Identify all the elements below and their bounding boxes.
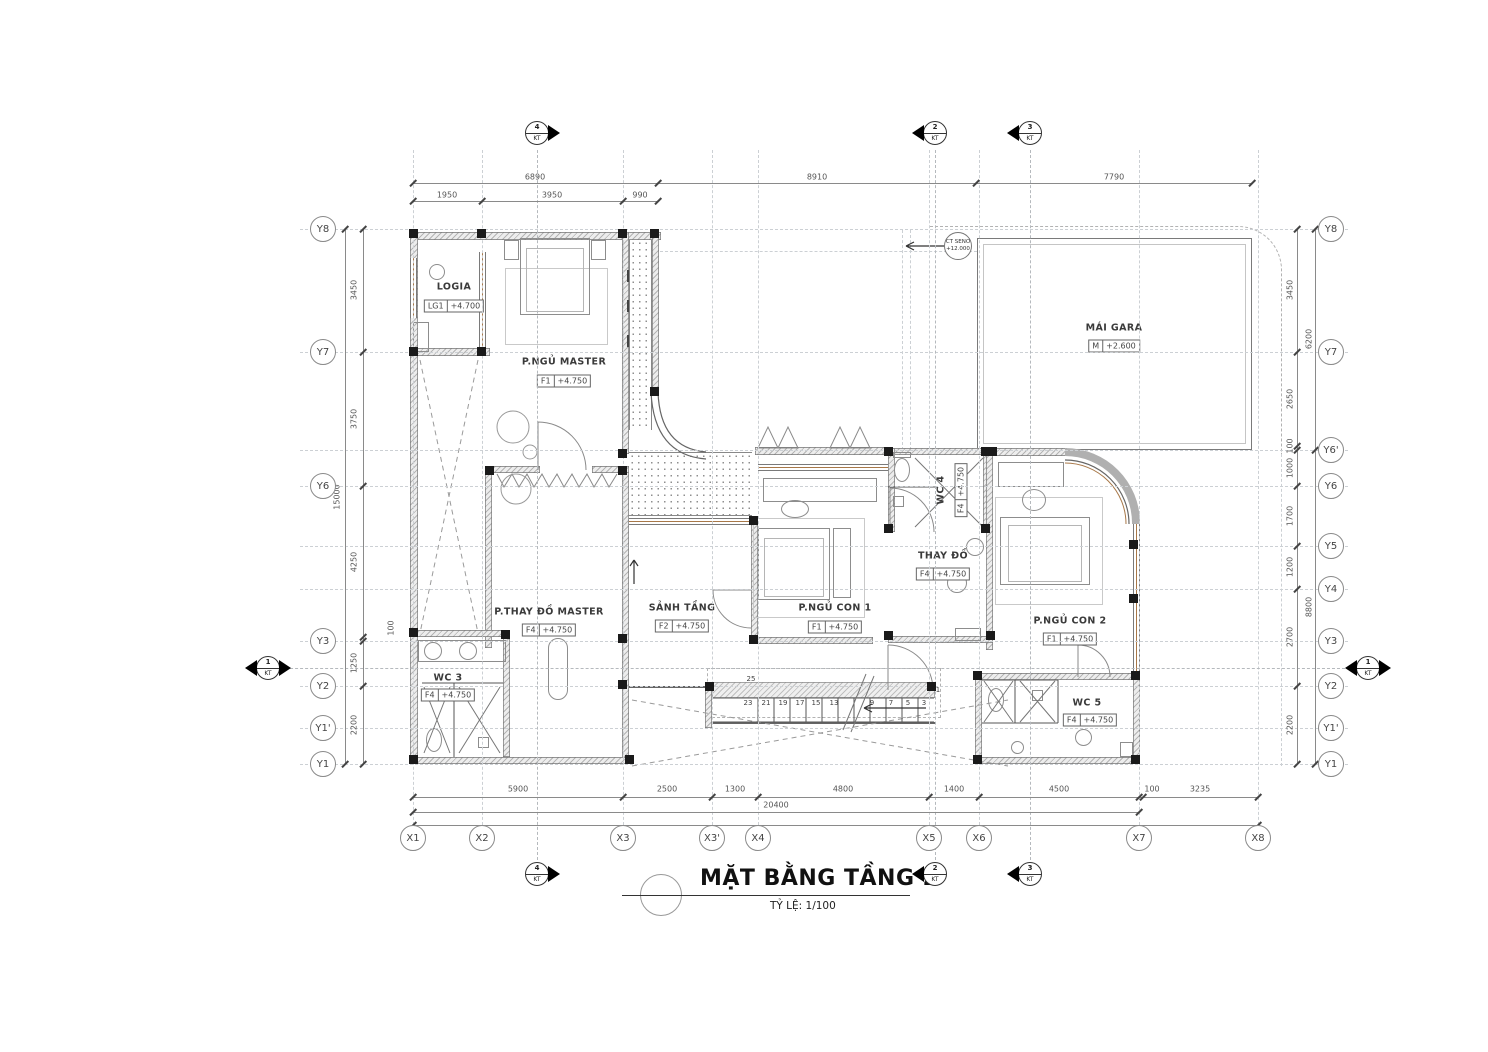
column	[477, 229, 486, 238]
dim-label: 1400	[944, 785, 964, 794]
dim-line-h2	[413, 797, 1258, 798]
section-marker-arrow	[245, 660, 257, 676]
bench-closet	[548, 638, 568, 700]
tag-level: +4.750	[826, 622, 862, 633]
room-tag-hall: F2+4.750	[655, 620, 709, 633]
column	[409, 628, 418, 637]
column	[1131, 755, 1140, 764]
grid-line-x7	[979, 150, 980, 845]
column	[618, 680, 627, 689]
dim-label: 1000	[1286, 458, 1295, 478]
dim-label: 4800	[833, 785, 853, 794]
grid-line-x6	[929, 150, 930, 845]
bed-con2-inner	[1008, 525, 1082, 582]
dim-label: 2650	[1286, 389, 1295, 409]
wall-con1-terrace	[755, 447, 888, 455]
room-label-thaydo: THAY ĐỒ	[918, 551, 968, 562]
axis-bubble-yr-Y7: Y7	[1318, 339, 1344, 365]
section-marker-sheet: KT	[924, 875, 946, 886]
grid-line-x8	[1139, 150, 1140, 845]
tag-level: +4.750	[956, 464, 967, 500]
room-tag-thaydo: F4+4.750	[916, 568, 970, 581]
dim-label: 20400	[763, 801, 788, 810]
column	[618, 449, 627, 458]
room-label-hall: SẢNH TẦNG	[649, 603, 716, 614]
stair-number: 5	[906, 699, 910, 707]
terrace-stipple-vertical	[629, 240, 652, 430]
seno-line-b	[910, 230, 911, 450]
wall-wc3-top	[410, 630, 510, 637]
wall-wc5-bottom	[975, 757, 1140, 764]
window-hall-top	[629, 518, 751, 525]
section-marker-4: 4KT	[525, 862, 549, 886]
column	[749, 516, 758, 525]
column	[618, 466, 627, 475]
dim-label: 4500	[1049, 785, 1069, 794]
tag-code: M	[1089, 341, 1103, 352]
grid-line-y2	[300, 352, 1348, 353]
toilet-wc3	[426, 728, 442, 752]
column	[1131, 671, 1140, 680]
section-marker-arrow	[912, 866, 924, 882]
axis-bubble-yr-Y8: Y8	[1318, 216, 1344, 242]
wall-wc4-left	[888, 448, 895, 532]
tank-wc4	[893, 452, 911, 458]
seno-line-a	[902, 230, 903, 450]
room-label-master: P.NGỦ MASTER	[522, 357, 606, 368]
dim-label: 990	[632, 191, 647, 200]
bed-master-inner	[526, 248, 584, 312]
tag-level: +4.750	[1061, 634, 1097, 645]
title-underline	[622, 895, 910, 896]
room-label-logia: LOGIA	[437, 282, 471, 293]
tag-level: +4.750	[673, 621, 709, 632]
dim-label: 2200	[350, 715, 359, 735]
wall-wc5-top	[975, 673, 1140, 680]
seno-callout: CT SENO +12.000	[944, 232, 972, 260]
stair-number: 9	[870, 699, 874, 707]
wall-closet-left	[485, 468, 492, 648]
axis-bubble-x-X4: X4	[745, 825, 771, 851]
sink-wc3-b	[459, 642, 477, 660]
dim-label: 1250	[350, 653, 359, 673]
room-tag-logia: LG1+4.700	[424, 300, 484, 313]
grid-line-x5	[758, 150, 759, 845]
section-line-3	[1030, 150, 1031, 860]
axis-bubble-yl-Y2: Y2	[310, 673, 336, 699]
section-marker-arrow	[279, 660, 291, 676]
section-marker-arrow	[1379, 660, 1391, 676]
axis-bubble-x-X3: X3	[610, 825, 636, 851]
column	[618, 634, 627, 643]
room-label-con2: P.NGỦ CON 2	[1034, 616, 1107, 627]
stool-thaydo-a	[966, 538, 984, 556]
grid-line-y4	[300, 486, 1348, 487]
column	[477, 347, 486, 356]
shower-wc3	[478, 737, 489, 748]
section-marker-1: 1KT	[256, 656, 280, 680]
floor-plan-canvas: LOGIA LG1+4.700 P.NGỦ MASTER F1+4.750 MÁ…	[0, 0, 1488, 1052]
tag-code: F4	[1064, 715, 1081, 726]
column	[409, 229, 418, 238]
nightstand-master-left	[504, 240, 519, 260]
dim-line-v0	[345, 229, 346, 764]
section-line-4	[537, 150, 538, 860]
axis-bubble-yl-Y1: Y1	[310, 751, 336, 777]
tag-level: +2.600	[1103, 341, 1139, 352]
column	[986, 631, 995, 640]
room-tag-wc4: F4+4.750	[955, 463, 968, 517]
section-marker-sheet: KT	[257, 669, 279, 680]
column	[981, 524, 990, 533]
dim-label: 1300	[725, 785, 745, 794]
axis-bubble-x-X1: X1	[400, 825, 426, 851]
section-marker-1: 1KT	[1356, 656, 1380, 680]
dim-tick	[1248, 179, 1255, 186]
section-marker-arrow	[912, 125, 924, 141]
dim-label: 8800	[1305, 597, 1314, 617]
tag-level: +4.750	[555, 376, 591, 387]
dim-label: 8910	[807, 173, 827, 182]
tag-code: F1	[538, 376, 555, 387]
axis-bubble-yl-Y3: Y3	[310, 628, 336, 654]
column	[625, 755, 634, 764]
column	[650, 229, 659, 238]
section-marker-arrow	[548, 125, 560, 141]
axis-bubble-yr-Y4: Y4	[1318, 576, 1344, 602]
dim-line-h3	[413, 812, 1139, 813]
stair-number: 23	[744, 699, 753, 707]
section-marker-2: 2KT	[923, 121, 947, 145]
dim-label: 100	[387, 620, 396, 635]
section-marker-sheet: KT	[1019, 875, 1041, 886]
sidetable-con1	[833, 528, 851, 598]
axis-bubble-yl-Y8: Y8	[310, 216, 336, 242]
shower-wc4	[893, 496, 904, 507]
dim-label: 3450	[350, 280, 359, 300]
drawing-scale: TỶ LỆ: 1/100	[770, 900, 836, 912]
axis-bubble-yl-Y6: Y6	[310, 473, 336, 499]
wall-bottom-left	[410, 757, 632, 764]
stair-number: 1	[936, 686, 940, 694]
wall-closet-top-a	[486, 466, 540, 473]
dim-line-h4	[413, 825, 1258, 826]
tag-code: F4	[917, 569, 934, 580]
column	[1129, 540, 1138, 549]
room-tag-wc3: F4+4.750	[421, 689, 475, 702]
seno-callout-line1: CT SENO	[946, 239, 970, 246]
seno-callout-line2: +12.000	[946, 246, 970, 253]
dim-label: 1200	[1286, 557, 1295, 577]
stair-number: 19	[779, 699, 788, 707]
column	[501, 630, 510, 639]
stool-wc5-b	[1011, 741, 1024, 754]
grid-line-y3	[300, 450, 1348, 451]
grid-line-x9	[1258, 150, 1259, 845]
stair-number: 25	[747, 675, 756, 683]
axis-bubble-yl-Y7: Y7	[310, 339, 336, 365]
dim-tick	[654, 197, 661, 204]
axis-bubble-x-X2: X2	[469, 825, 495, 851]
desk-con2	[998, 462, 1064, 487]
column	[988, 447, 997, 456]
dim-label: 3750	[350, 409, 359, 429]
terrace-stipple-horizontal	[629, 452, 752, 516]
stair-number: 21	[762, 699, 771, 707]
room-label-closet-master: P.THAY ĐỒ MASTER	[494, 607, 604, 618]
column	[485, 466, 494, 475]
section-marker-number: 4	[526, 863, 548, 875]
dim-label: 3950	[542, 191, 562, 200]
dim-label: 4250	[350, 552, 359, 572]
column	[973, 755, 982, 764]
grid-line-y6	[300, 589, 1348, 590]
room-label-con1: P.NGỦ CON 1	[799, 603, 872, 614]
tag-code: F2	[656, 621, 673, 632]
room-tag-wc5: F4+4.750	[1063, 714, 1117, 727]
column	[884, 447, 893, 456]
section-marker-arrow	[1007, 125, 1019, 141]
tag-level: +4.750	[934, 569, 970, 580]
toilet-wc4	[894, 458, 910, 482]
column	[705, 682, 714, 691]
axis-bubble-yr-Y1: Y1	[1318, 751, 1344, 777]
tag-code: LG1	[425, 301, 448, 312]
section-line-2	[935, 150, 936, 860]
section-marker-number: 2	[924, 863, 946, 875]
section-marker-sheet: KT	[1357, 669, 1379, 680]
room-label-wc5: WC 5	[1073, 698, 1102, 709]
column	[884, 631, 893, 640]
column	[927, 682, 936, 691]
column	[749, 635, 758, 644]
column	[650, 387, 659, 396]
dim-label: 3450	[1286, 280, 1295, 300]
stair-number: 7	[889, 699, 893, 707]
section-marker-sheet: KT	[526, 134, 548, 145]
section-marker-3: 3KT	[1018, 862, 1042, 886]
dim-label: 2200	[1286, 715, 1295, 735]
axis-bubble-x-X5: X5	[916, 825, 942, 851]
column	[884, 524, 893, 533]
grid-line-x3	[623, 150, 624, 845]
dim-label: 3235	[1190, 785, 1210, 794]
section-marker-number: 4	[526, 122, 548, 134]
section-marker-sheet: KT	[924, 134, 946, 145]
axis-bubble-yr-Y6': Y6'	[1318, 437, 1344, 463]
axis-bubble-x-X8: X8	[1245, 825, 1271, 851]
drawing-title: MẶT BẰNG TẦNG 2	[700, 866, 938, 891]
dim-label: 1950	[437, 191, 457, 200]
dim-label: 100	[1286, 438, 1295, 453]
room-tag-gara: M+2.600	[1088, 340, 1140, 353]
grid-line-x2	[482, 150, 483, 845]
room-label-wc4: WC 4	[936, 476, 947, 505]
mat-thaydo	[955, 628, 981, 641]
axis-bubble-x-X7: X7	[1126, 825, 1152, 851]
axis-bubble-yr-Y5: Y5	[1318, 533, 1344, 559]
section-marker-2: 2KT	[923, 862, 947, 886]
line-stair-bottom	[712, 722, 935, 724]
column	[618, 229, 627, 238]
axis-bubble-yr-Y6: Y6	[1318, 473, 1344, 499]
tag-code: F4	[956, 499, 967, 516]
dim-label: 6200	[1305, 329, 1314, 349]
section-line-1	[255, 668, 1345, 669]
grid-line-x1	[413, 150, 414, 845]
section-marker-sheet: KT	[1019, 134, 1041, 145]
tag-code: F4	[422, 690, 439, 701]
room-label-wc3: WC 3	[434, 673, 463, 684]
column	[409, 347, 418, 356]
tag-code: F1	[1044, 634, 1061, 645]
dim-label: 100	[1144, 785, 1159, 794]
section-marker-number: 3	[1019, 122, 1041, 134]
axis-bubble-x-X6: X6	[966, 825, 992, 851]
dim-label: 7790	[1104, 173, 1124, 182]
dim-label: 2500	[657, 785, 677, 794]
column	[409, 755, 418, 764]
section-marker-sheet: KT	[526, 875, 548, 886]
dim-label: 6890	[525, 173, 545, 182]
section-marker-3: 3KT	[1018, 121, 1042, 145]
stair-number: 17	[796, 699, 805, 707]
stool-wc5-a	[1075, 729, 1092, 746]
grid-line-y1	[300, 229, 1348, 230]
stair-number: 13	[830, 699, 839, 707]
logia-planter	[429, 264, 445, 280]
dim-label: 1700	[1286, 506, 1295, 526]
section-marker-number: 1	[1357, 657, 1379, 669]
axis-bubble-yr-Y3: Y3	[1318, 628, 1344, 654]
section-marker-arrow	[1345, 660, 1357, 676]
shower-wc5	[1032, 690, 1043, 701]
section-marker-number: 3	[1019, 863, 1041, 875]
stair-number: 3	[922, 699, 926, 707]
wall-strip-right	[652, 232, 659, 392]
toilet-wc5	[988, 688, 1004, 712]
column	[973, 671, 982, 680]
column	[1129, 594, 1138, 603]
room-tag-con1: F1+4.750	[808, 621, 862, 634]
tag-level: +4.750	[540, 625, 576, 636]
dim-label: 2700	[1286, 627, 1295, 647]
axis-bubble-yl-Y1': Y1'	[310, 715, 336, 741]
grid-line-y9	[300, 728, 1348, 729]
section-marker-4: 4KT	[525, 121, 549, 145]
room-tag-master: F1+4.750	[537, 375, 591, 388]
tag-level: +4.750	[1081, 715, 1117, 726]
room-tag-closet-master: F4+4.750	[522, 624, 576, 637]
grid-line-x4	[712, 150, 713, 845]
chair-con1	[781, 500, 809, 518]
nightstand-master-right	[591, 240, 606, 260]
axis-bubble-yr-Y2: Y2	[1318, 673, 1344, 699]
grid-line-y5	[300, 546, 1348, 547]
stair-number: 15	[812, 699, 821, 707]
site-boundary-right	[1281, 454, 1282, 766]
section-marker-number: 2	[924, 122, 946, 134]
room-tag-con2: F1+4.750	[1043, 633, 1097, 646]
tag-code: F1	[809, 622, 826, 633]
chair-con2	[1022, 489, 1046, 511]
window-con1-top	[758, 464, 888, 471]
wall-stair-landing	[712, 682, 935, 698]
wall-thaydo-right	[986, 448, 993, 650]
section-marker-arrow	[548, 866, 560, 882]
desk-con1	[763, 478, 877, 502]
dim-line-h0	[413, 183, 1252, 184]
tag-level: +4.700	[448, 301, 484, 312]
dim-label: 5900	[508, 785, 528, 794]
sink-wc3-a	[424, 642, 442, 660]
grid-line-y7	[300, 641, 1348, 642]
grid-line-y8	[300, 686, 1348, 687]
axis-bubble-yr-Y1': Y1'	[1318, 715, 1344, 741]
dim-line-v3	[1315, 229, 1316, 764]
grid-line-y10	[300, 764, 1348, 765]
tag-level: +4.750	[439, 690, 475, 701]
room-label-gara: MÁI GARA	[1086, 323, 1143, 334]
section-marker-number: 1	[257, 657, 279, 669]
axis-bubble-x-X3': X3'	[699, 825, 725, 851]
section-marker-arrow	[1007, 866, 1019, 882]
